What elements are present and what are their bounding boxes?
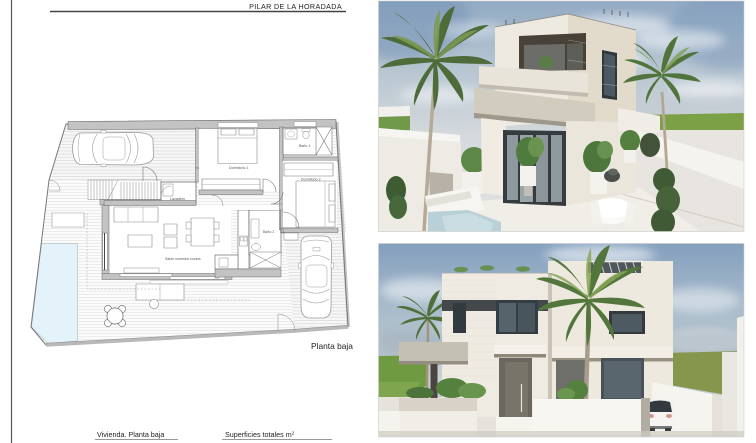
svg-text:Baño 1: Baño 1 [299, 144, 310, 148]
svg-text:Salón comedor cocina: Salón comedor cocina [165, 257, 201, 261]
svg-text:Planta baja: Planta baja [311, 341, 353, 351]
svg-text:Baño 2: Baño 2 [263, 230, 274, 234]
svg-text:PILAR DE LA HORADADA: PILAR DE LA HORADADA [249, 2, 342, 11]
svg-text:Superficies totales m2: Superficies totales m2 [225, 430, 295, 439]
svg-text:Vivienda. Planta baja: Vivienda. Planta baja [97, 430, 164, 439]
svg-text:Dormitorio 2: Dormitorio 2 [301, 178, 321, 182]
svg-text:Dormitorio 1: Dormitorio 1 [229, 166, 249, 170]
